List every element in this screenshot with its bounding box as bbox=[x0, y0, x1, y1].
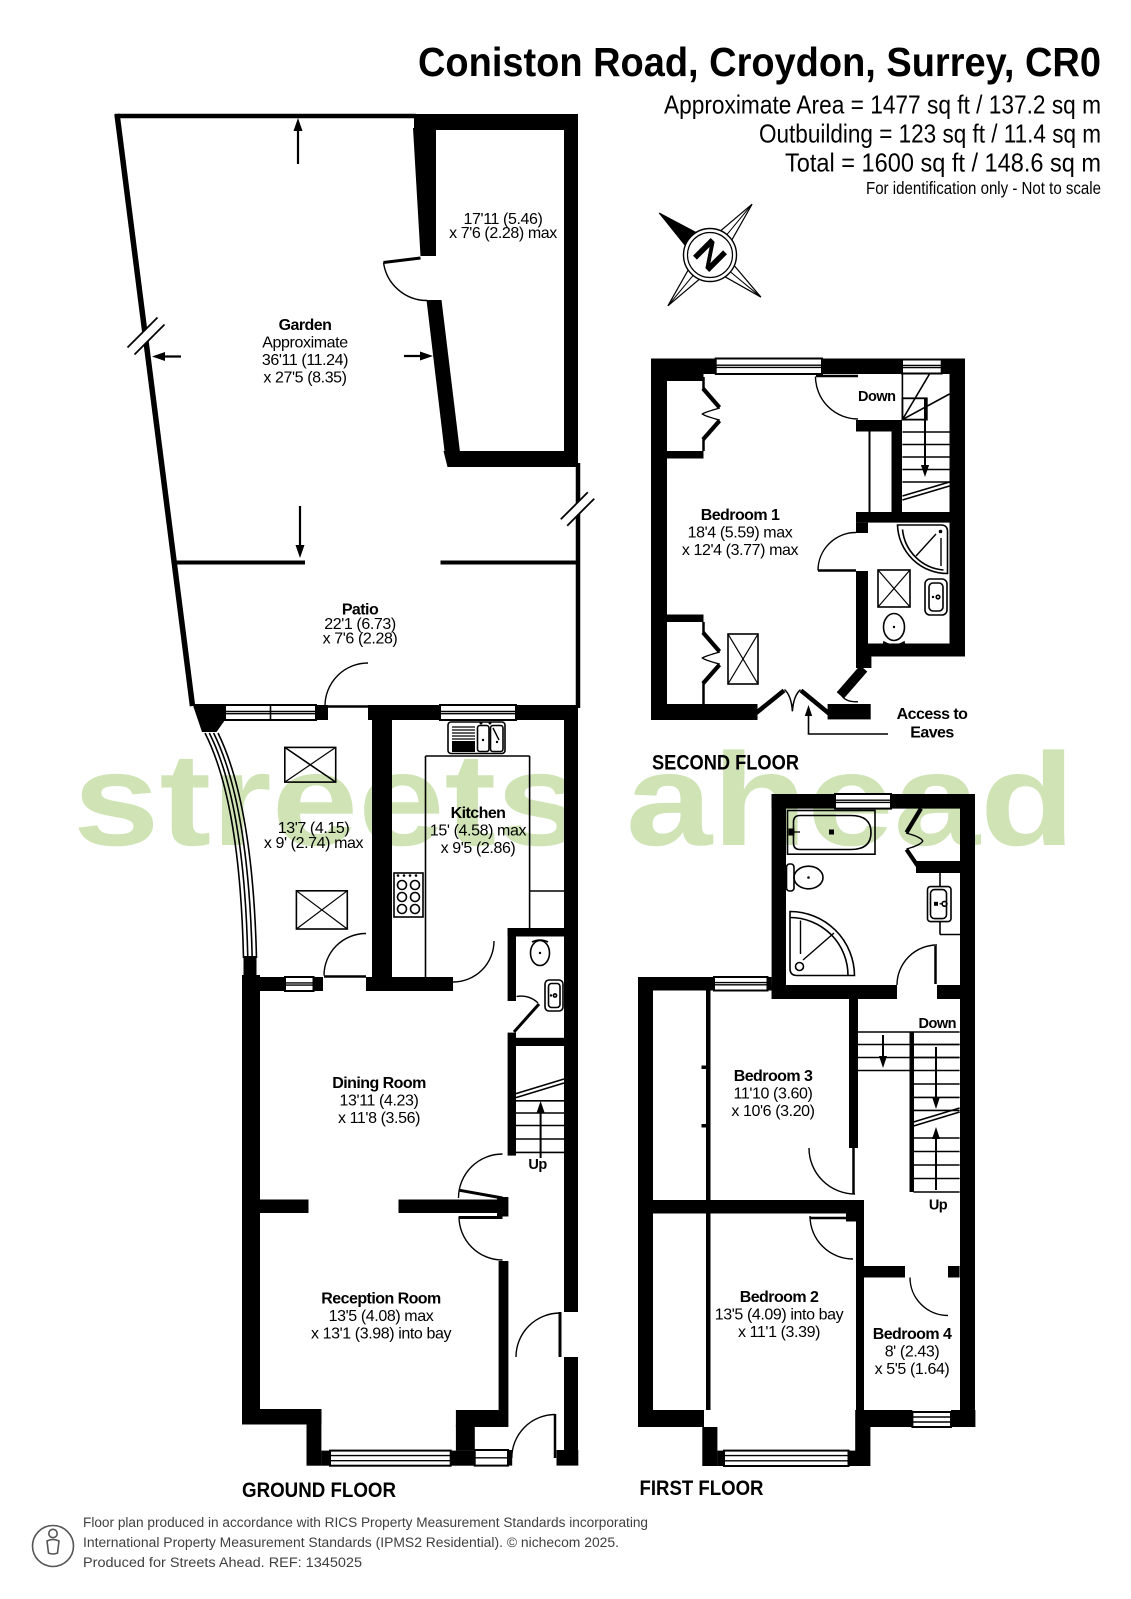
svg-text:Outbuilding = 123 sq ft / 11.4: Outbuilding = 123 sq ft / 11.4 sq m bbox=[759, 119, 1101, 149]
svg-text:x 5'5 (1.64): x 5'5 (1.64) bbox=[875, 1361, 950, 1378]
svg-text:13'5 (4.09) into bay: 13'5 (4.09) into bay bbox=[715, 1307, 844, 1324]
svg-text:Bedroom 3: Bedroom 3 bbox=[734, 1068, 813, 1085]
svg-text:11'10 (3.60): 11'10 (3.60) bbox=[734, 1086, 813, 1103]
svg-text:Kitchen: Kitchen bbox=[451, 805, 506, 822]
svg-text:x 11'1 (3.39): x 11'1 (3.39) bbox=[738, 1324, 820, 1341]
svg-text:Bedroom 2: Bedroom 2 bbox=[740, 1289, 819, 1306]
svg-text:36'11 (11.24): 36'11 (11.24) bbox=[262, 352, 348, 369]
svg-text:15' (4.58) max: 15' (4.58) max bbox=[430, 823, 527, 840]
svg-text:x 7'6 (2.28): x 7'6 (2.28) bbox=[323, 631, 398, 648]
svg-text:13'5 (4.08) max: 13'5 (4.08) max bbox=[329, 1308, 434, 1325]
svg-text:Down: Down bbox=[858, 389, 895, 405]
svg-text:x 10'6 (3.20): x 10'6 (3.20) bbox=[731, 1103, 814, 1120]
svg-text:x 12'4 (3.77) max: x 12'4 (3.77) max bbox=[682, 542, 799, 559]
svg-text:FIRST FLOOR: FIRST FLOOR bbox=[640, 1477, 764, 1500]
svg-text:International Property Measure: International Property Measurement Stand… bbox=[83, 1535, 619, 1551]
svg-text:Up: Up bbox=[929, 1198, 948, 1214]
svg-text:Floor plan produced in accorda: Floor plan produced in accordance with R… bbox=[83, 1515, 648, 1531]
svg-text:Bedroom 4: Bedroom 4 bbox=[873, 1326, 952, 1343]
svg-text:For identification only - Not: For identification only - Not to scale bbox=[866, 178, 1101, 198]
svg-text:8' (2.43): 8' (2.43) bbox=[885, 1344, 940, 1361]
svg-text:GROUND FLOOR: GROUND FLOOR bbox=[242, 1479, 396, 1502]
svg-text:Access to: Access to bbox=[897, 706, 968, 723]
svg-text:18'4 (5.59) max: 18'4 (5.59) max bbox=[688, 525, 793, 542]
svg-text:x 7'6 (2.28) max: x 7'6 (2.28) max bbox=[449, 225, 557, 242]
svg-text:Eaves: Eaves bbox=[910, 725, 954, 742]
svg-text:x 27'5 (8.35): x 27'5 (8.35) bbox=[263, 370, 346, 387]
svg-text:Approximate Area = 1477 sq ft: Approximate Area = 1477 sq ft / 137.2 sq… bbox=[664, 90, 1101, 120]
svg-text:Approximate: Approximate bbox=[262, 335, 348, 352]
svg-text:Bedroom 1: Bedroom 1 bbox=[701, 507, 780, 524]
svg-text:Total = 1600 sq ft / 148.6 sq: Total = 1600 sq ft / 148.6 sq m bbox=[785, 148, 1101, 178]
svg-text:13'11 (4.23): 13'11 (4.23) bbox=[340, 1093, 419, 1110]
svg-text:Produced for Streets Ahead.: Produced for Streets Ahead. REF: 1345025 bbox=[83, 1555, 362, 1571]
svg-text:x 9'5 (2.86): x 9'5 (2.86) bbox=[441, 840, 516, 857]
svg-text:Coniston Road, Croydon, Surrey: Coniston Road, Croydon, Surrey, CR0 bbox=[418, 39, 1101, 85]
svg-text:Reception Room: Reception Room bbox=[321, 1291, 441, 1308]
svg-text:x 9' (2.74) max: x 9' (2.74) max bbox=[264, 835, 364, 852]
svg-text:x 11'8 (3.56): x 11'8 (3.56) bbox=[338, 1110, 420, 1127]
svg-text:Up: Up bbox=[528, 1157, 547, 1173]
svg-text:Down: Down bbox=[919, 1016, 956, 1032]
svg-text:Dining Room: Dining Room bbox=[332, 1075, 426, 1092]
svg-text:Garden: Garden bbox=[279, 317, 332, 334]
svg-text:x 13'1 (3.98) into bay: x 13'1 (3.98) into bay bbox=[311, 1326, 452, 1343]
svg-text:SECOND FLOOR: SECOND FLOOR bbox=[652, 752, 799, 775]
